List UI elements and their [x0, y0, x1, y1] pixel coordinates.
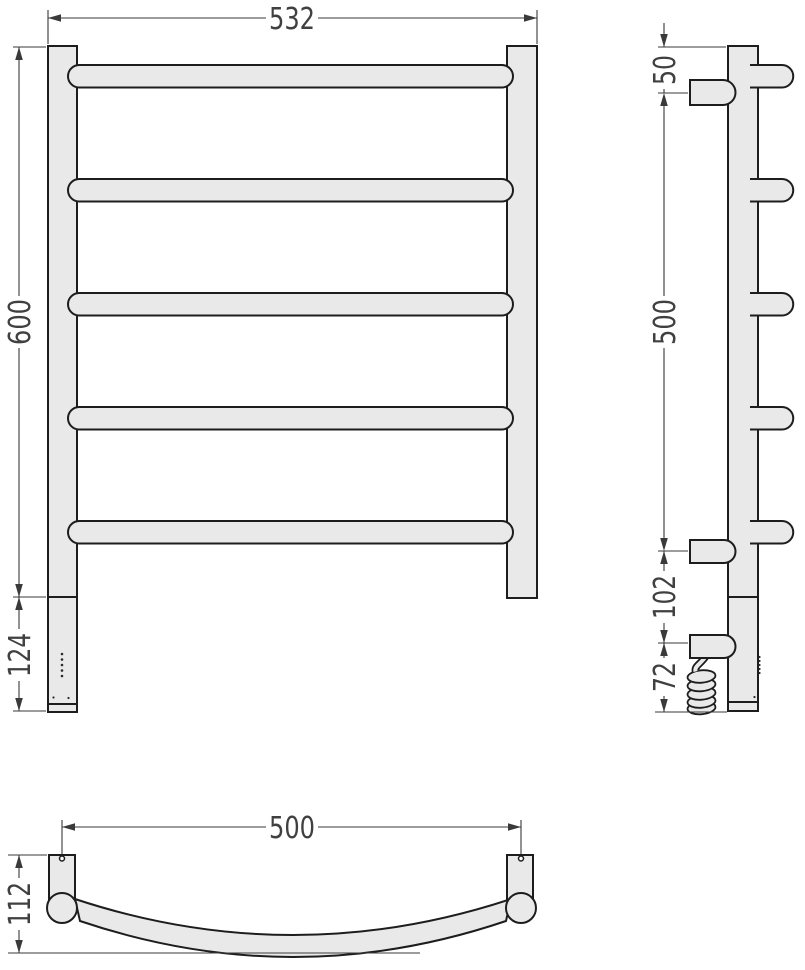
dim-label-bracket-to-cable: 102	[648, 575, 683, 619]
electric-connection-box	[690, 635, 736, 658]
drawing-svg: 532 600 124	[0, 0, 805, 970]
wall-bracket-bottom	[690, 540, 736, 563]
arrowhead-left	[62, 823, 75, 831]
front-rung-4	[68, 407, 513, 430]
side-rail	[728, 46, 758, 597]
front-left-post-heater-housing	[48, 597, 77, 704]
top-left-post-section	[47, 893, 77, 923]
front-right-post	[507, 46, 537, 598]
front-left-post	[48, 46, 77, 597]
top-curved-rung	[75, 899, 511, 957]
front-rung-1	[68, 65, 513, 88]
side-view: 50 500 102 72	[648, 23, 793, 715]
arrowhead-up	[15, 47, 23, 60]
side-rail-end-cap	[728, 702, 758, 711]
side-rung-1	[750, 65, 793, 88]
arrowhead-down	[660, 699, 668, 712]
front-left-post-end-cap	[48, 704, 77, 712]
top-left-mount-hole	[60, 856, 65, 861]
arrowhead-right	[524, 14, 537, 22]
front-rung-2	[68, 179, 513, 202]
top-view: 500 112	[3, 811, 536, 957]
front-dim-width: 532	[48, 2, 537, 44]
wall-bracket-top	[690, 80, 736, 105]
dim-label-front-width: 532	[269, 2, 315, 37]
arrowhead-down	[15, 584, 23, 597]
side-rung-3	[750, 293, 793, 316]
dim-label-cable-drop: 72	[648, 662, 683, 692]
front-view: 532 600 124	[3, 2, 537, 712]
top-dim-mount-span: 500	[62, 811, 521, 854]
towel-rail-dimension-drawing: 532 600 124	[0, 0, 805, 970]
dim-label-mount-span: 500	[269, 811, 315, 846]
dim-label-top-offset: 50	[648, 55, 683, 85]
side-rung-5	[750, 521, 793, 544]
arrowhead-down	[660, 538, 668, 551]
top-right-post-section	[506, 893, 536, 923]
arrowhead-up	[15, 855, 23, 868]
dim-label-bracket-span: 500	[648, 299, 683, 345]
arrowhead-down	[660, 34, 668, 47]
top-right-mount-hole	[519, 856, 524, 861]
side-rung-4	[750, 407, 793, 430]
dim-label-front-height: 600	[3, 299, 38, 345]
front-dim-heater-section: 124	[3, 597, 46, 711]
front-rung-5	[68, 521, 513, 544]
arrowhead-down	[660, 630, 668, 643]
side-dim-bracket-to-cable: 102	[648, 551, 688, 643]
side-dim-bracket-span: 500	[648, 97, 688, 551]
side-rung-2	[750, 179, 793, 202]
arrowhead-up	[660, 551, 668, 564]
arrowhead-right	[508, 823, 521, 831]
arrowhead-up	[660, 643, 668, 656]
front-rung-3	[68, 293, 513, 316]
dim-label-heater-section: 124	[3, 633, 38, 677]
spiral-power-cable	[687, 656, 716, 715]
front-dim-height: 600	[3, 47, 46, 597]
arrowhead-down	[15, 698, 23, 711]
arrowhead-left	[48, 14, 61, 22]
arrowhead-down	[15, 940, 23, 953]
dim-label-depth: 112	[3, 882, 38, 926]
arrowhead-up	[15, 597, 23, 610]
